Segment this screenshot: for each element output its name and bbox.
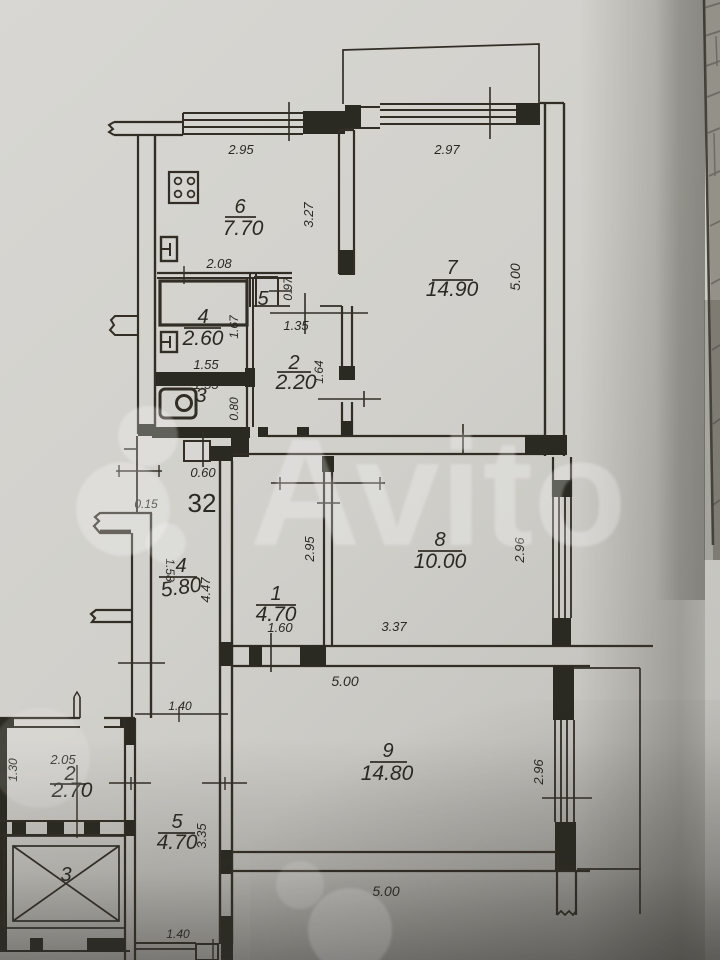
- svg-text:Avito: Avito: [250, 407, 627, 578]
- svg-text:6: 6: [234, 196, 246, 218]
- svg-text:32: 32: [188, 488, 217, 518]
- svg-text:14.90: 14.90: [426, 278, 479, 301]
- svg-text:3.37: 3.37: [381, 619, 407, 634]
- svg-text:2.60: 2.60: [182, 327, 224, 350]
- svg-text:0.97: 0.97: [281, 276, 295, 301]
- svg-text:4: 4: [197, 306, 208, 328]
- svg-text:3: 3: [195, 385, 206, 407]
- svg-text:4.70: 4.70: [256, 603, 297, 626]
- svg-text:1.40: 1.40: [168, 699, 192, 713]
- svg-text:2.20: 2.20: [275, 371, 317, 394]
- svg-text:7.70: 7.70: [223, 217, 264, 240]
- svg-text:1.55: 1.55: [193, 357, 219, 372]
- svg-text:1: 1: [270, 583, 281, 605]
- svg-text:2.08: 2.08: [205, 256, 232, 271]
- svg-text:2.97: 2.97: [433, 142, 460, 157]
- svg-text:5.00: 5.00: [331, 673, 358, 689]
- svg-text:7: 7: [446, 257, 458, 279]
- svg-text:0.60: 0.60: [190, 465, 216, 480]
- svg-text:5.00: 5.00: [507, 263, 523, 290]
- svg-text:1.35: 1.35: [283, 318, 309, 333]
- svg-text:2.95: 2.95: [227, 142, 254, 157]
- svg-text:1.67: 1.67: [227, 314, 241, 339]
- svg-text:0.80: 0.80: [227, 397, 241, 421]
- svg-text:5: 5: [257, 288, 269, 310]
- svg-text:3.27: 3.27: [301, 202, 316, 228]
